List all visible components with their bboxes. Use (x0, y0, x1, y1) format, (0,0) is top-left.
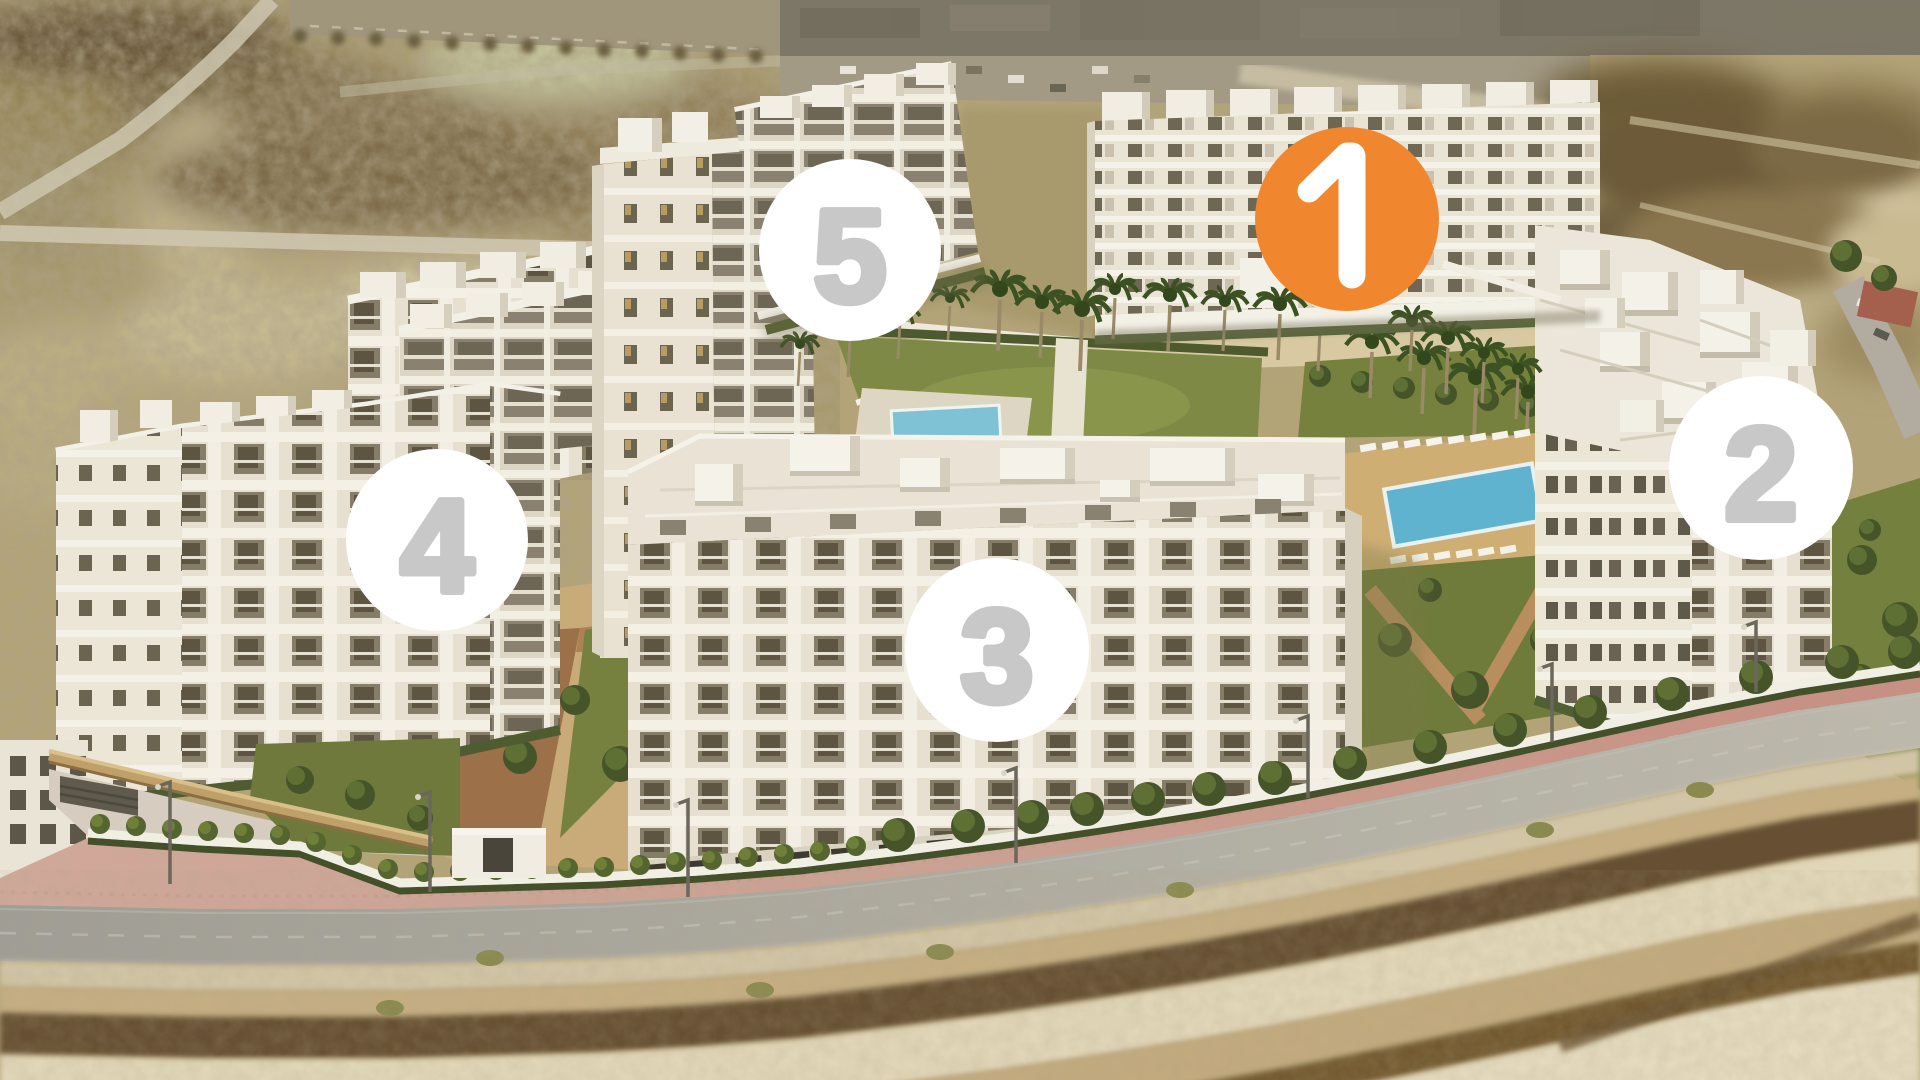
svg-text:3: 3 (960, 583, 1033, 730)
svg-text:2: 2 (1724, 401, 1797, 548)
svg-text:5: 5 (813, 183, 886, 330)
svg-text:4: 4 (400, 473, 473, 620)
